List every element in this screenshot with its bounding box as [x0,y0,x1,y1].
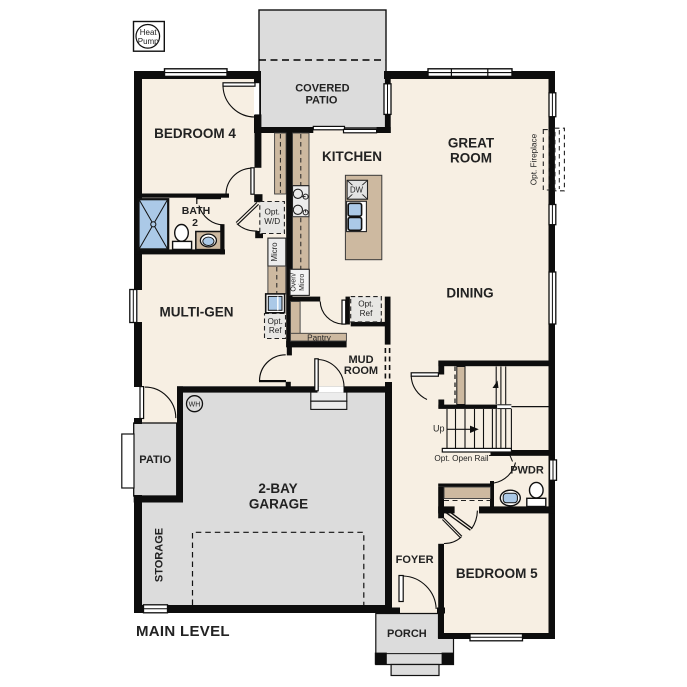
svg-text:DW: DW [350,186,364,195]
svg-text:FOYER: FOYER [396,554,434,566]
svg-text:ROOM: ROOM [450,151,492,166]
svg-text:GREAT: GREAT [448,136,495,151]
svg-text:PATIO: PATIO [139,454,171,466]
svg-text:PWDR: PWDR [510,465,544,477]
svg-text:Up: Up [433,424,445,434]
svg-text:GARAGE: GARAGE [249,497,308,512]
svg-text:W/D: W/D [264,217,280,226]
svg-text:MAIN LEVEL: MAIN LEVEL [136,623,230,640]
svg-text:PORCH: PORCH [387,628,427,640]
svg-text:Heat: Heat [140,28,158,37]
svg-text:STORAGE: STORAGE [154,528,166,582]
svg-text:Opt. Open Rail: Opt. Open Rail [434,454,488,463]
svg-text:2: 2 [192,217,198,229]
svg-text:DINING: DINING [446,286,493,301]
svg-text:Ref: Ref [269,326,282,335]
svg-text:Pump: Pump [138,37,159,46]
svg-text:PATIO: PATIO [306,95,338,107]
svg-text:Opt.: Opt. [358,300,373,309]
svg-text:Micro: Micro [299,274,306,291]
svg-text:BEDROOM 5: BEDROOM 5 [456,566,538,581]
svg-text:Opt.: Opt. [267,317,282,326]
svg-text:2-BAY: 2-BAY [258,481,297,496]
svg-text:ROOM: ROOM [344,365,378,377]
svg-text:MULTI-GEN: MULTI-GEN [160,305,234,320]
svg-text:Opt. Fireplace: Opt. Fireplace [530,133,539,185]
svg-text:COVERED: COVERED [295,82,349,94]
svg-text:Ref: Ref [360,309,373,318]
svg-text:BATH: BATH [182,205,210,217]
svg-text:Opt.: Opt. [264,208,279,217]
svg-text:KITCHEN: KITCHEN [322,149,382,164]
svg-text:Oven/: Oven/ [291,273,298,292]
svg-text:Micro: Micro [270,242,279,262]
svg-text:WH: WH [189,402,201,409]
svg-text:Pantry: Pantry [307,334,332,343]
svg-text:BEDROOM 4: BEDROOM 4 [154,126,236,141]
